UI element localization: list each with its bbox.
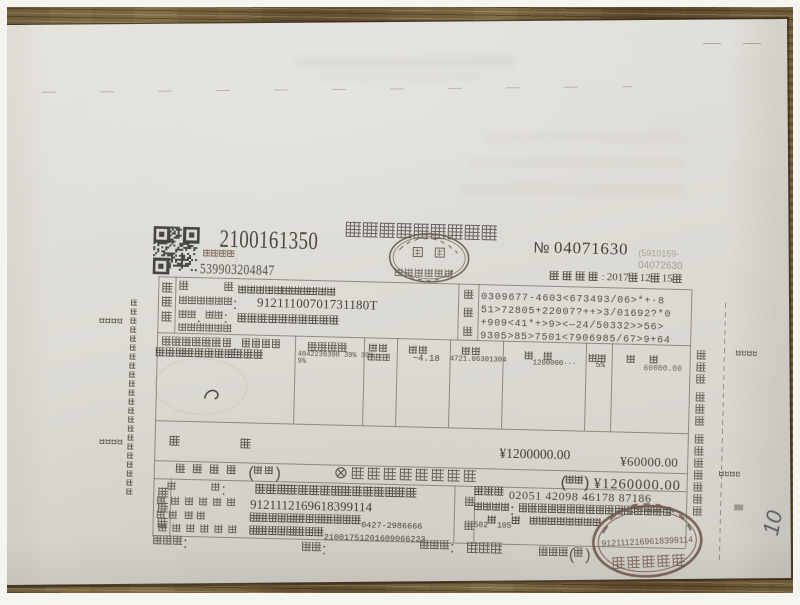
svg-text:9121112169618399114: 9121112169618399114 (601, 534, 693, 548)
